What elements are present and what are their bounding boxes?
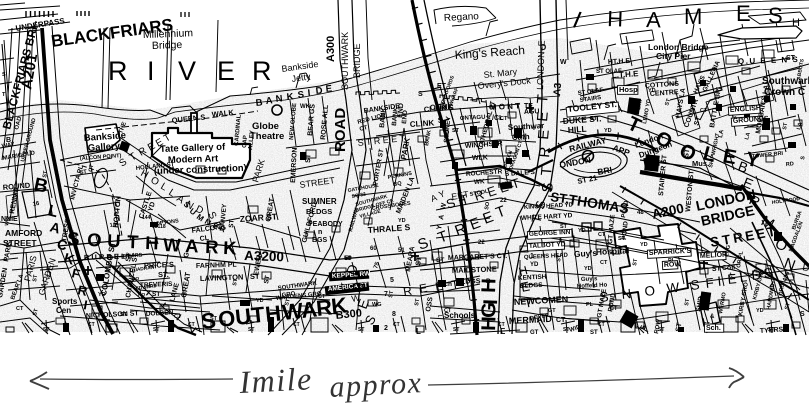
svg-text:Sch.: Sch. xyxy=(706,325,721,332)
svg-text:CT: CT xyxy=(556,317,566,324)
svg-text:S: S xyxy=(67,228,80,249)
svg-text:BLDGS: BLDGS xyxy=(520,282,544,290)
svg-text:U: U xyxy=(107,230,121,251)
svg-text:A: A xyxy=(265,95,273,107)
svg-text:FARNHM PL: FARNHM PL xyxy=(196,262,238,270)
svg-text:A3200: A3200 xyxy=(244,248,284,264)
svg-text:YD: YD xyxy=(584,266,592,272)
svg-text:D: D xyxy=(315,85,323,97)
svg-text:S: S xyxy=(690,277,701,293)
svg-text:BGS: BGS xyxy=(312,237,328,244)
svg-text:W: W xyxy=(163,234,182,256)
svg-text:B: B xyxy=(255,97,263,109)
svg-text:CT: CT xyxy=(393,322,400,328)
svg-text:NO: NO xyxy=(138,292,145,298)
svg-text:S: S xyxy=(800,311,805,318)
svg-text:22: 22 xyxy=(478,240,485,246)
svg-text:T: T xyxy=(534,94,552,105)
svg-text:R: R xyxy=(536,146,554,158)
svg-text:CT: CT xyxy=(88,322,95,328)
svg-text:ST: ST xyxy=(228,219,236,228)
svg-text:HILL: HILL xyxy=(567,124,587,135)
svg-text:R: R xyxy=(205,236,219,257)
svg-text:L: L xyxy=(416,327,421,336)
svg-text:A3: A3 xyxy=(552,82,564,96)
svg-text:M: M xyxy=(684,4,702,29)
svg-text:Cath: Cath xyxy=(512,132,530,142)
svg-text:H: H xyxy=(607,6,624,32)
svg-text:S: S xyxy=(297,89,304,101)
svg-text:SUMNER: SUMNER xyxy=(302,197,337,206)
svg-text:I: I xyxy=(147,56,155,86)
svg-text:CLINK: CLINK xyxy=(410,118,435,129)
svg-text:approx: approx xyxy=(329,366,423,404)
svg-text:TE: TE xyxy=(524,103,533,110)
svg-text:YD: YD xyxy=(756,308,764,314)
svg-text:YD: YD xyxy=(640,242,648,248)
svg-text:END: END xyxy=(397,103,405,118)
svg-text:ST: ST xyxy=(712,266,722,273)
svg-text:ST: ST xyxy=(453,327,459,333)
svg-text:HT.H.E: HT.H.E xyxy=(608,58,631,66)
svg-text:CT: CT xyxy=(174,314,182,320)
svg-text:A300: A300 xyxy=(325,36,337,62)
svg-text:City Pier: City Pier xyxy=(656,51,691,61)
svg-text:51: 51 xyxy=(398,248,405,254)
svg-text:NO: NO xyxy=(132,276,139,282)
svg-text:60: 60 xyxy=(370,246,377,252)
svg-text:E: E xyxy=(534,111,552,122)
svg-text:H: H xyxy=(478,278,500,293)
svg-text:D: D xyxy=(801,262,809,274)
svg-text:CLINK: CLINK xyxy=(430,102,454,112)
svg-text:Schools: Schools xyxy=(444,311,476,320)
svg-text:PL: PL xyxy=(586,302,594,308)
svg-text:E: E xyxy=(736,1,751,26)
svg-text:⌐: ⌐ xyxy=(438,311,443,320)
svg-text:O: O xyxy=(87,229,102,250)
svg-text:A: A xyxy=(646,7,662,33)
svg-text:T: T xyxy=(127,231,140,252)
svg-text:CT: CT xyxy=(188,322,195,328)
svg-text:AMFORD: AMFORD xyxy=(5,228,42,238)
svg-text:Sports: Sports xyxy=(52,297,78,306)
svg-text:ST: ST xyxy=(263,275,271,284)
svg-text:S: S xyxy=(200,308,217,334)
svg-text:CT: CT xyxy=(598,232,606,238)
svg-text:E: E xyxy=(727,271,738,287)
svg-text:W: W xyxy=(560,59,567,66)
svg-text:ST: ST xyxy=(153,327,159,333)
svg-text:Gallery: Gallery xyxy=(87,141,121,154)
svg-text:Regano: Regano xyxy=(444,11,480,24)
svg-text:ET: ET xyxy=(437,83,447,90)
svg-text:ST: ST xyxy=(358,327,364,333)
svg-text:Bridge: Bridge xyxy=(152,39,183,52)
svg-text:CT: CT xyxy=(16,306,24,312)
svg-text:E: E xyxy=(325,83,332,95)
svg-text:N: N xyxy=(621,286,632,302)
svg-text:48: 48 xyxy=(637,210,644,216)
svg-text:Guy's: Guy's xyxy=(581,276,598,283)
svg-text:H: H xyxy=(478,316,500,331)
svg-text:ROW: ROW xyxy=(664,261,682,269)
svg-text:5: 5 xyxy=(390,277,394,284)
svg-text:Hosp: Hosp xyxy=(619,85,638,94)
svg-text:L.T.H.E: L.T.H.E xyxy=(612,69,640,80)
svg-text:ST: ST xyxy=(305,153,312,163)
svg-text:ST: ST xyxy=(590,330,598,336)
svg-text:G: G xyxy=(478,302,501,318)
svg-text:RD: RD xyxy=(786,161,795,168)
svg-text:SOUTHWARK: SOUTHWARK xyxy=(340,32,350,90)
svg-text:W: W xyxy=(666,280,680,296)
svg-text:O: O xyxy=(540,43,546,52)
svg-text:Crown C: Crown C xyxy=(764,87,805,98)
svg-text:ST: ST xyxy=(436,257,444,264)
svg-text:Imile: Imile xyxy=(237,360,313,400)
svg-text:ST: ST xyxy=(786,55,796,62)
svg-text:V: V xyxy=(178,56,196,86)
svg-text:n: n xyxy=(318,229,322,236)
svg-text:BLDGS: BLDGS xyxy=(456,278,481,286)
svg-text:GT: GT xyxy=(530,330,539,336)
svg-text:8: 8 xyxy=(392,311,396,318)
svg-text:F: F xyxy=(705,275,715,291)
svg-text:Guy’s: Guy’s xyxy=(574,248,598,259)
svg-text:H: H xyxy=(145,232,159,253)
svg-text:K: K xyxy=(223,237,238,258)
svg-text:/CL: /CL xyxy=(492,115,504,122)
svg-text:WK: WK xyxy=(474,178,486,186)
svg-text:ST: ST xyxy=(152,291,160,298)
svg-text:ROAD: ROAD xyxy=(332,108,349,152)
svg-text:S: S xyxy=(599,289,610,305)
svg-text:YD: YD xyxy=(578,228,586,234)
svg-text:CT: CT xyxy=(598,322,605,328)
svg-text:2: 2 xyxy=(384,325,388,332)
svg-text:E: E xyxy=(535,129,553,140)
svg-text:7: 7 xyxy=(384,291,388,298)
svg-text:ST: ST xyxy=(43,327,49,333)
svg-text:YD: YD xyxy=(530,262,539,268)
svg-text:BRIDGE: BRIDGE xyxy=(352,43,362,78)
svg-text:T: T xyxy=(538,166,556,177)
svg-text:R: R xyxy=(108,56,128,86)
svg-text:ST: ST xyxy=(452,128,460,134)
svg-text:CT: CT xyxy=(600,260,608,266)
svg-text:E: E xyxy=(500,327,506,336)
svg-text:K: K xyxy=(286,91,294,103)
svg-text:YD: YD xyxy=(98,292,106,298)
svg-text:H: H xyxy=(264,300,282,327)
svg-text:Mus.: Mus. xyxy=(692,159,709,168)
svg-text:LAVINGTON: LAVINGTON xyxy=(200,272,244,283)
svg-text:&: & xyxy=(710,314,715,320)
svg-text:59: 59 xyxy=(344,256,351,262)
svg-text:S: S xyxy=(418,91,423,98)
svg-text:WLK: WLK xyxy=(472,154,488,162)
svg-text:YD: YD xyxy=(604,128,612,134)
svg-text:N: N xyxy=(275,93,283,105)
svg-text:Hospital: Hospital xyxy=(596,245,630,257)
svg-text:S: S xyxy=(768,3,783,28)
svg-text:R: R xyxy=(252,56,272,86)
svg-text:M O N T: M O N T xyxy=(490,101,521,112)
svg-text:O: O xyxy=(644,283,656,299)
svg-text:MAIDSTONE: MAIDSTONE xyxy=(452,264,497,275)
svg-text:ST.: ST. xyxy=(158,270,169,279)
svg-text:Cen: Cen xyxy=(56,306,71,315)
svg-text:E: E xyxy=(217,56,235,86)
